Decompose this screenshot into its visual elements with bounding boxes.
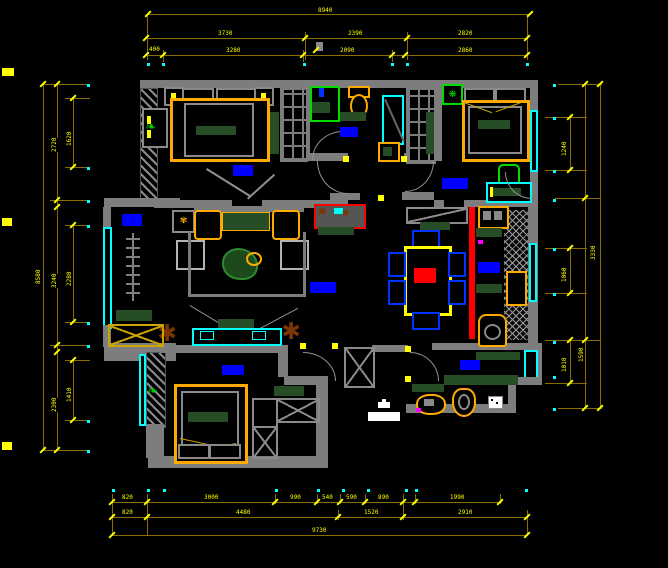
room-label-block — [122, 214, 142, 226]
room-label-block — [222, 365, 244, 375]
room-label-block — [233, 165, 253, 176]
room-label-layer — [0, 0, 668, 568]
cad-viewport: ❧ ❋ ✱ ✱ ✾ ✱ ✱ — [0, 0, 668, 568]
room-label-block — [442, 178, 468, 189]
room-label-block — [460, 360, 480, 370]
room-label-block — [478, 262, 500, 273]
room-label-block — [310, 282, 336, 293]
room-label-block — [340, 127, 358, 137]
